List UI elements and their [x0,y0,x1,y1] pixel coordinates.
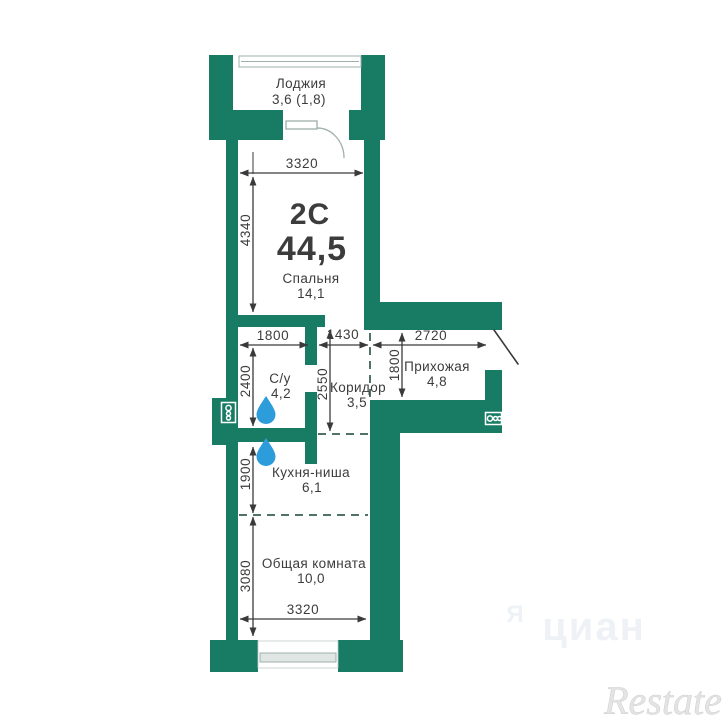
brand-watermark: Restate [603,678,722,723]
kitchen-area-label: 6,1 [302,480,322,495]
wall-left-lower [226,327,238,640]
dim-label-living-width: 3320 [287,602,319,617]
faint-watermark-word: циан [542,605,646,649]
wall-loggia-left-pier [209,55,233,140]
faint-watermark: Я циан [506,601,645,649]
wall-hallway-bottom [370,400,502,433]
living-window-glazing [260,653,336,662]
wall-left-bump [212,398,226,445]
dim-label-corridor-height: 2550 [315,368,330,400]
water-drop-icon [257,438,276,466]
balcony-door-swing-arc [317,128,344,158]
wall-bathroom-bottom [226,428,313,442]
wall-hallway-top [364,302,502,330]
wall-bath-corridor-upper [305,327,317,365]
wall-bedroom-right [364,140,380,330]
wall-bottom-right [338,640,403,672]
dim-label-living-height: 3080 [238,560,253,592]
floor-plan-drawing: Я циан [0,0,725,725]
loggia-name-label: Лоджия [276,76,326,91]
wall-bedroom-bottom [226,315,325,327]
total-area-label: 44,5 [277,230,347,268]
bedroom-name-label: Спальня [282,271,339,286]
wall-bottom-left [210,640,258,672]
faint-watermark-letter: Я [506,601,525,628]
corridor-area-label: 3,5 [347,395,367,410]
wall-bedroom-left [226,140,238,327]
dim-label-bedroom-width: 3320 [286,156,318,171]
plan-type-label: 2С [290,198,330,231]
kitchen-name-label: Кухня-ниша [272,465,350,480]
wall-hallway-right [485,370,502,400]
floor-plan-canvas: Я циан [0,0,725,725]
dim-label-kitchen-height: 1900 [238,458,253,490]
living-name-label: Общая комната [262,556,366,571]
wall-loggia-right-pier [361,55,385,140]
dim-label-bathroom-width: 1800 [257,328,289,343]
entrance-door-leaf [494,330,518,364]
wall-loggia-right-ledge [349,110,361,140]
loggia-area-label: 3,6 (1,8) [272,92,326,107]
dim-label-hallway-width: 2720 [415,328,447,343]
balcony-door-leaf [286,121,317,129]
dim-label-bedroom-height: 4340 [238,214,253,246]
dim-label-bathroom-height: 2400 [238,365,253,397]
dim-label-corridor-width: 1430 [327,327,359,342]
bathroom-name-label: С/у [269,371,290,386]
bedroom-area-label: 14,1 [297,286,325,301]
wall-loggia-left-ledge [233,110,283,140]
corridor-name-label: Коридор [330,380,386,395]
hallway-name-label: Прихожая [404,359,470,374]
wall-lower-right [370,433,400,640]
living-area-label: 10,0 [297,571,325,586]
dim-label-hallway-height: 1800 [387,349,402,381]
bathroom-area-label: 4,2 [271,386,291,401]
hallway-area-label: 4,8 [427,374,447,389]
